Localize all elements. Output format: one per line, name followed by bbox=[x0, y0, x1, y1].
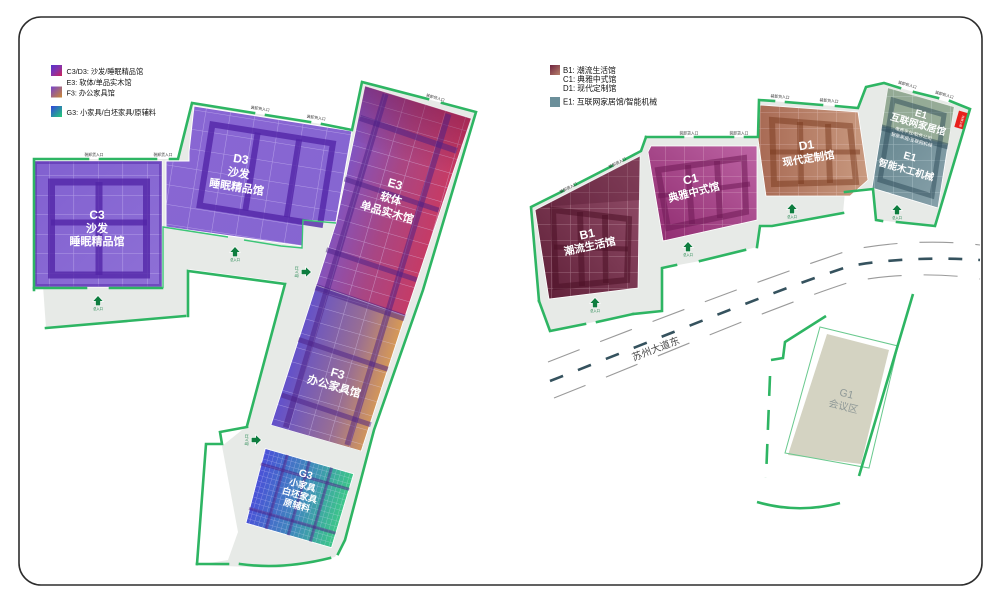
svg-text:总入口: 总入口 bbox=[787, 214, 797, 219]
svg-text:B1: 潮流生活馆: B1: 潮流生活馆 bbox=[563, 65, 616, 75]
svg-text:G3: 小家具/白坯家具/原辅料: G3: 小家具/白坯家具/原辅料 bbox=[67, 108, 156, 117]
svg-text:E3: 软体/单品实木馆: E3: 软体/单品实木馆 bbox=[67, 78, 132, 87]
svg-text:C1: 典雅中式馆: C1: 典雅中式馆 bbox=[563, 74, 616, 84]
svg-text:C3/D3: 沙发/睡眠精品馆: C3/D3: 沙发/睡眠精品馆 bbox=[67, 67, 144, 76]
svg-text:装卸货入口: 装卸货入口 bbox=[154, 152, 173, 157]
svg-text:总入口: 总入口 bbox=[294, 266, 299, 278]
svg-text:沙发: 沙发 bbox=[86, 221, 109, 235]
svg-text:C3: C3 bbox=[89, 208, 105, 222]
svg-text:总入口: 总入口 bbox=[683, 252, 693, 257]
svg-text:D3: D3 bbox=[232, 151, 250, 167]
svg-text:D1: D1 bbox=[798, 137, 816, 153]
svg-text:装卸货入口: 装卸货入口 bbox=[680, 131, 699, 136]
svg-text:总入口: 总入口 bbox=[892, 215, 902, 220]
svg-text:总入口: 总入口 bbox=[590, 308, 600, 313]
svg-text:装卸货入口: 装卸货入口 bbox=[85, 152, 104, 157]
svg-text:装卸货入口: 装卸货入口 bbox=[730, 131, 749, 136]
svg-text:总入口: 总入口 bbox=[244, 434, 249, 446]
svg-text:睡眠精品馆: 睡眠精品馆 bbox=[70, 234, 125, 248]
svg-text:E1: 互联网家居馆/智能机械: E1: 互联网家居馆/智能机械 bbox=[563, 97, 657, 107]
svg-text:总入口: 总入口 bbox=[230, 257, 240, 262]
svg-text:总入口: 总入口 bbox=[93, 306, 103, 311]
svg-text:F3: 办公家具馆: F3: 办公家具馆 bbox=[67, 89, 115, 98]
svg-text:D1: 现代定制馆: D1: 现代定制馆 bbox=[563, 83, 616, 93]
